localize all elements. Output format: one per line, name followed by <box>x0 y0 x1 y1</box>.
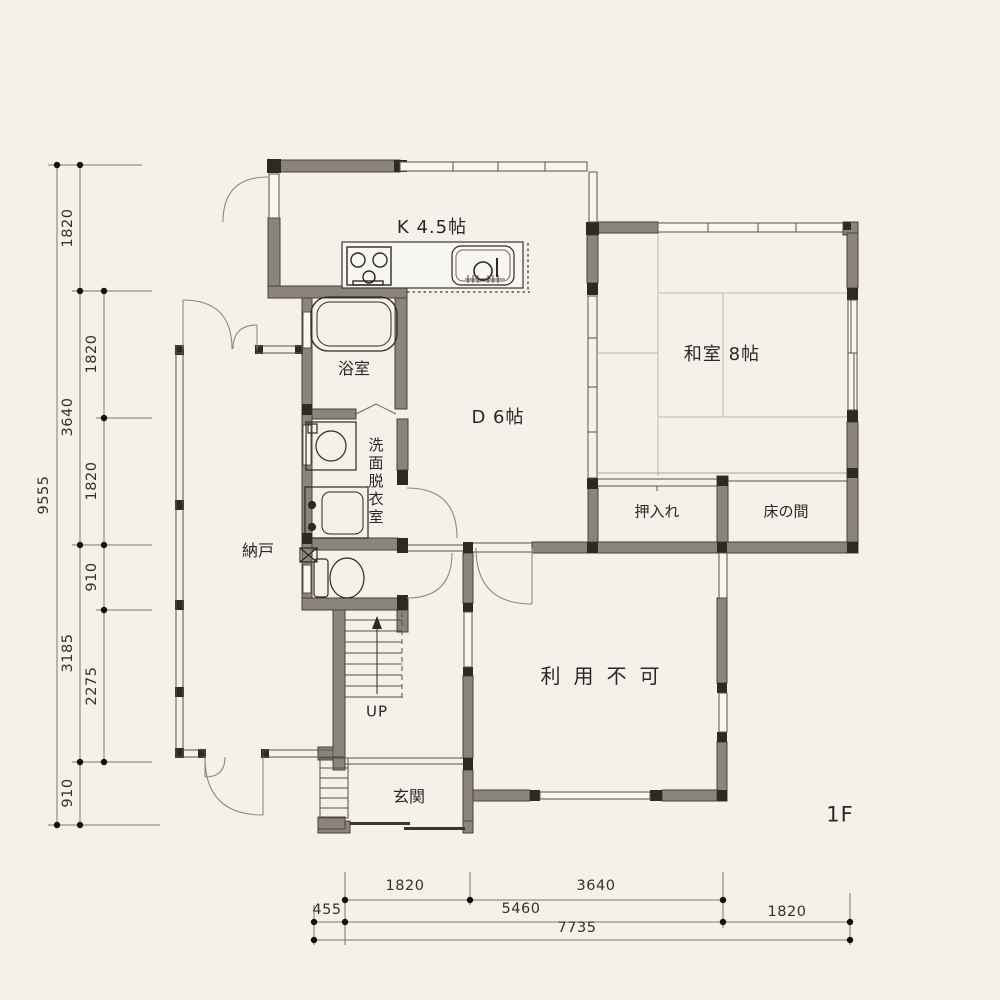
unusable-room-door-arc <box>476 548 532 604</box>
room-label-tokonoma: 床の間 <box>763 505 808 520</box>
dim-left-outer-2: 3185 <box>61 634 76 673</box>
room-label-genkan: 玄関 <box>393 789 425 805</box>
washitsu-north-window <box>658 223 843 232</box>
bathtub-icon <box>311 297 397 351</box>
floorplan-page: K 4.5帖 D 6帖 和室 8帖 浴室 洗面脱衣室 納戸 押入れ 床の間 利用… <box>0 0 1000 1000</box>
vanity-icon <box>305 487 368 538</box>
dim-bottom-row1-1: 3640 <box>577 879 616 894</box>
dim-bottom-row2-2: 1820 <box>768 905 807 920</box>
dim-left-outer-1: 3640 <box>61 398 76 437</box>
floorplan-drawing <box>0 0 1000 1000</box>
dim-bottom-total: 7735 <box>558 921 597 936</box>
washitsu-east-window <box>848 300 857 410</box>
thin-walls <box>176 296 847 764</box>
room-label-oshiire: 押入れ <box>634 505 679 520</box>
washing-machine-icon <box>306 422 356 470</box>
floor-label: 1F <box>826 805 853 826</box>
dim-left-outer-3: 910 <box>61 778 76 807</box>
entrance-sliding-door <box>350 822 465 830</box>
toilet-door-arc <box>407 553 452 598</box>
room-label-bath: 浴室 <box>338 361 370 377</box>
kitchen-window <box>400 162 587 171</box>
dim-bottom-row2-0: 455 <box>312 903 341 918</box>
room-label-dining: D 6帖 <box>471 409 524 427</box>
dim-left-total: 9555 <box>37 476 52 515</box>
room-label-washroom: 洗面脱衣室 <box>368 437 383 527</box>
stairs-icon <box>345 612 402 700</box>
room-label-washitsu: 和室 8帖 <box>684 346 760 364</box>
dim-left-outer-0: 1820 <box>61 209 76 248</box>
dim-bottom-row2-1: 5460 <box>502 902 541 917</box>
kitchen-service-door-opening <box>269 174 279 218</box>
room-label-kitchen: K 4.5帖 <box>397 219 467 237</box>
kitchen-service-door-arc <box>223 177 268 222</box>
washroom-door-arc <box>407 488 457 538</box>
room-label-storage: 納戸 <box>242 543 274 559</box>
dim-left-inner-3: 2275 <box>85 667 100 706</box>
dim-left-inner-0: 1820 <box>85 335 100 374</box>
room-label-unusable: 利用不可 <box>528 666 673 686</box>
dim-left-inner-2: 910 <box>85 562 100 591</box>
stairs-up-label: UP <box>366 705 388 720</box>
dim-left-inner-1: 1820 <box>85 462 100 501</box>
dim-bottom-row1-0: 1820 <box>386 879 425 894</box>
